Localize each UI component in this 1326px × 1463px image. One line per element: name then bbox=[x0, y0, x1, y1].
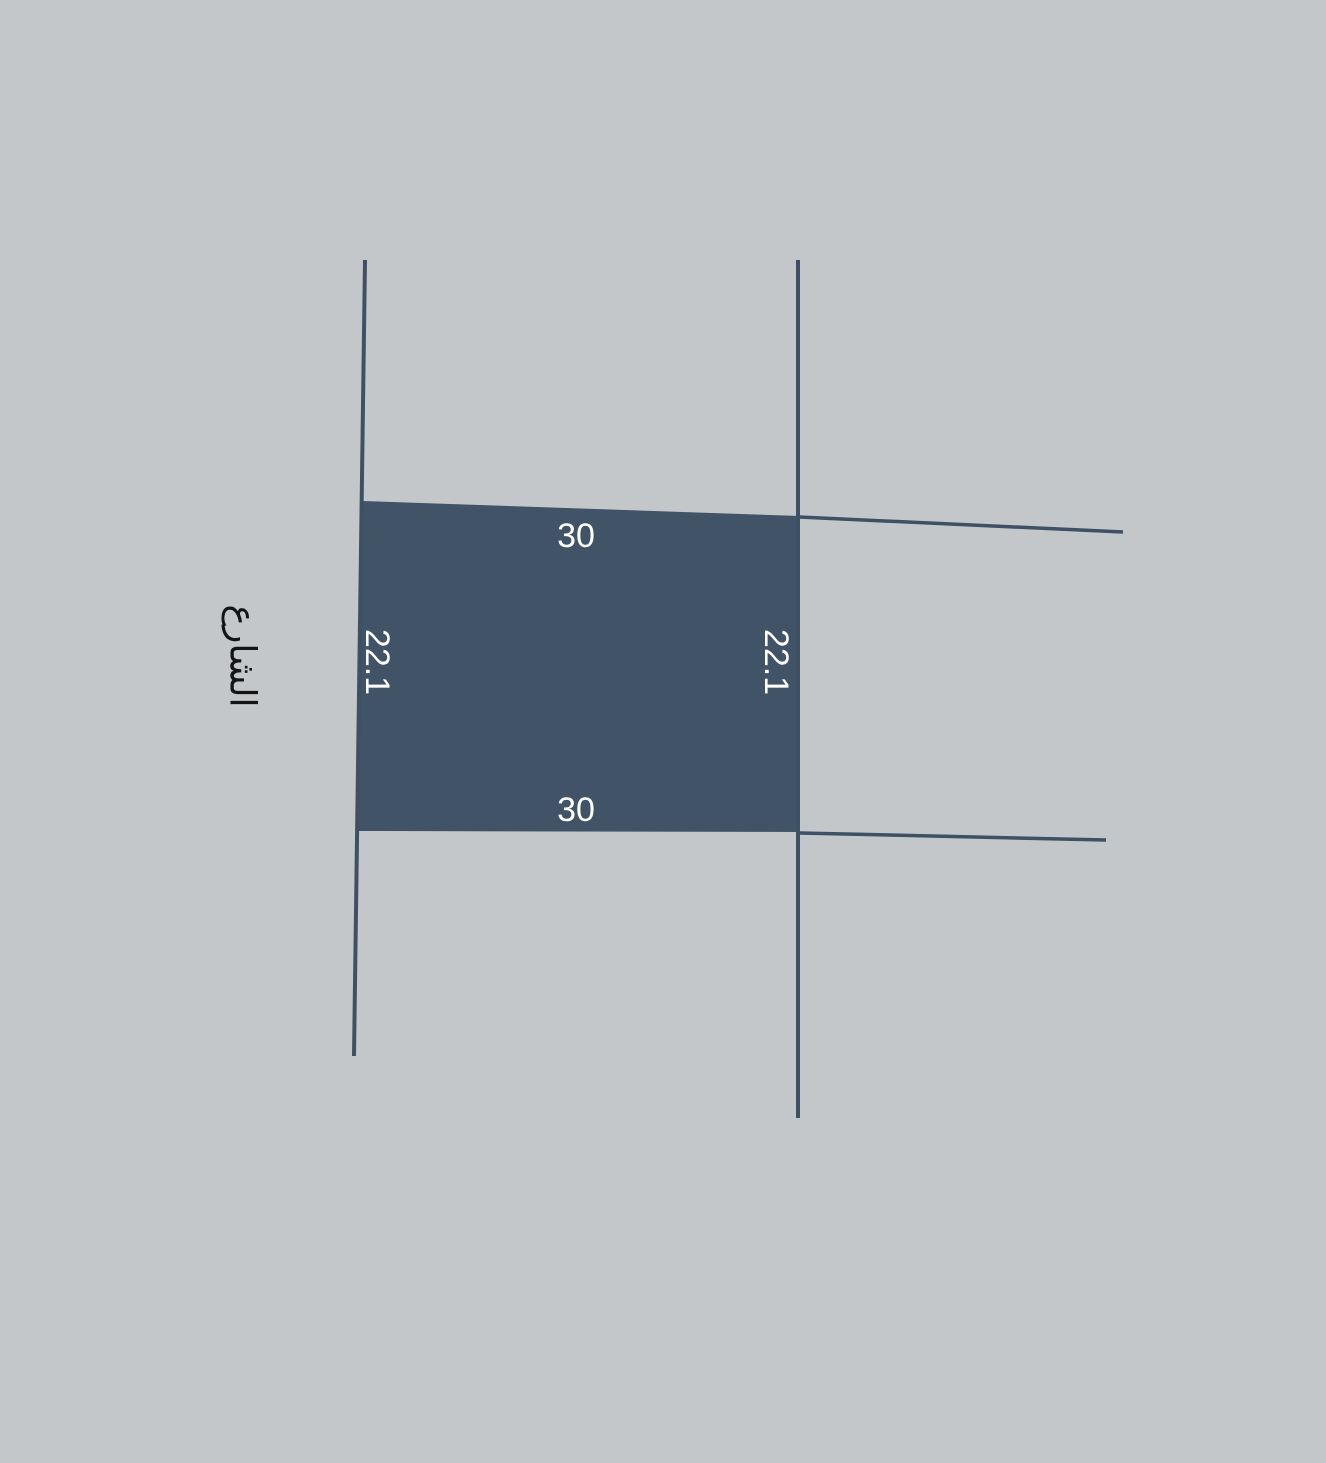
top-dimension-label: 30 bbox=[557, 517, 595, 555]
right-dimension-label: 22.1 bbox=[757, 629, 795, 695]
left-dimension-label: 22.1 bbox=[358, 629, 396, 695]
street-label: الشارع bbox=[221, 605, 262, 708]
parcel-plan-page: 30 30 22.1 22.1 الشارع bbox=[0, 0, 1326, 1463]
parcel-diagram-canvas: 30 30 22.1 22.1 الشارع bbox=[0, 0, 1326, 1463]
bottom-dimension-label: 30 bbox=[557, 791, 595, 829]
